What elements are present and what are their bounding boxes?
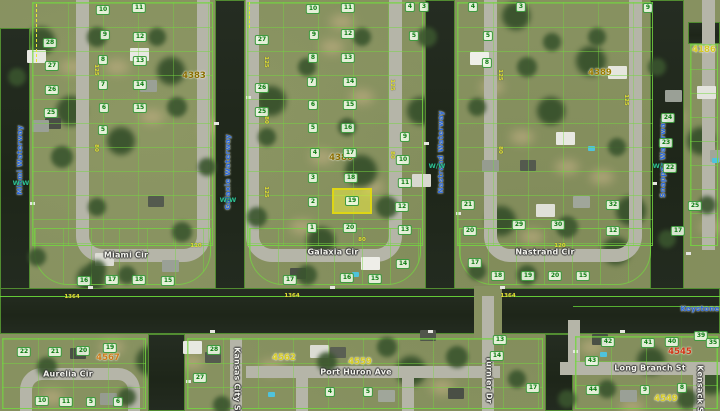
parcel-number-badge: 23: [659, 138, 673, 148]
parcel-number-badge: 1: [307, 223, 317, 233]
parcel-number-badge: 10: [396, 155, 410, 165]
street-label: Turnier Dr: [485, 356, 494, 403]
parcel-number-badge: 21: [461, 200, 475, 210]
parcel-number-badge: 8: [98, 55, 108, 65]
lot-dimension-label: 80: [497, 146, 503, 154]
parcel-number-badge: 11: [59, 397, 73, 407]
lot-dimension-label: 120: [554, 243, 565, 249]
parcel-number-badge: 3: [308, 173, 318, 183]
lot-dimension-label: 125: [389, 79, 395, 90]
parcel-number-badge: 11: [398, 178, 412, 188]
parcel-number-badge: 5: [483, 31, 493, 41]
parcel-number-badge: 4: [468, 2, 478, 12]
address-label: 4389: [588, 68, 612, 78]
parcel-number-badge: 8: [677, 383, 687, 393]
waterway-label: Keystone: [680, 305, 719, 313]
street-label: Galaxia Cir: [308, 248, 359, 257]
parcel-number-badge: 12: [133, 32, 147, 42]
parcel-number-badge: 28: [43, 38, 57, 48]
parcel-number-badge: 20: [463, 226, 477, 236]
parcel-number-badge: 40: [665, 337, 679, 347]
parcel-number-badge: 43: [585, 356, 599, 366]
parcel-number-badge: 14: [490, 351, 504, 361]
parcel-number-badge: 44: [586, 385, 600, 395]
satellite-parcel-map[interactable]: 19 Miami WaterwayGalaxie WaterwayNastran…: [0, 0, 720, 411]
street-label: Long Branch St: [614, 364, 686, 373]
parcel-number-badge: 16: [77, 276, 91, 286]
waterway-label: Nastrand Waterway: [437, 110, 445, 193]
parcel-number-badge: 11: [341, 3, 355, 13]
parcel-number-badge: 17: [671, 226, 685, 236]
lot-dimension-label: 1364: [500, 293, 515, 299]
parcel-number-badge: 10: [306, 4, 320, 14]
lot-dimension-label: 125: [497, 69, 503, 80]
parcel-number-badge: 6: [113, 397, 123, 407]
parcel-number-badge: 21: [48, 347, 62, 357]
street-label: Kensack St: [696, 365, 705, 411]
lot-dimension-label: 80: [93, 144, 99, 152]
parcel-number-badge: 16: [341, 123, 355, 133]
parcel-number-badge: 25: [44, 108, 58, 118]
address-label: 4545: [668, 347, 692, 357]
parcel-number-badge: 12: [395, 202, 409, 212]
parcel-number-badge: 16: [340, 273, 354, 283]
parcel-number-badge: 13: [398, 225, 412, 235]
parcel-number-badge: 22: [17, 347, 31, 357]
street-label: Aurelia Cir: [43, 370, 93, 379]
parcel-number-badge: 26: [45, 85, 59, 95]
waterway-ww-marker: W/W: [13, 179, 30, 187]
parcel-number-badge: 5: [98, 125, 108, 135]
parcel-number-badge: 12: [606, 226, 620, 236]
parcel-number-badge: 13: [133, 56, 147, 66]
address-label: 4562: [272, 353, 296, 363]
map-labels-overlay: Miami WaterwayGalaxie WaterwayNastrand W…: [0, 0, 720, 411]
waterway-ww-marker: W/W: [220, 196, 237, 204]
lot-dimension-label: 80: [358, 237, 366, 243]
parcel-number-badge: 30: [551, 220, 565, 230]
street-label: Port Huron Ave: [320, 368, 392, 377]
parcel-number-badge: 15: [133, 103, 147, 113]
parcel-number-badge: 32: [606, 200, 620, 210]
parcel-number-badge: 17: [468, 258, 482, 268]
parcel-number-badge: 7: [307, 77, 317, 87]
address-label: 4559: [348, 357, 372, 367]
parcel-number-badge: 22: [663, 163, 677, 173]
parcel-number-badge: 8: [482, 58, 492, 68]
parcel-number-badge: 9: [400, 132, 410, 142]
parcel-number-badge: 10: [35, 396, 49, 406]
parcel-number-badge: 10: [96, 5, 110, 15]
parcel-number-badge: 42: [601, 337, 615, 347]
parcel-number-badge: 19: [103, 343, 117, 353]
parcel-number-badge: 18: [344, 173, 358, 183]
parcel-number-badge: 18: [491, 271, 505, 281]
parcel-number-badge: 6: [99, 103, 109, 113]
parcel-number-badge: 5: [86, 397, 96, 407]
parcel-number-badge: 5: [363, 387, 373, 397]
lot-dimension-label: 80: [389, 151, 395, 159]
parcel-number-badge: 15: [343, 100, 357, 110]
parcel-number-badge: 29: [512, 220, 526, 230]
parcel-number-badge: 15: [368, 274, 382, 284]
parcel-number-badge: 3: [419, 2, 429, 12]
parcel-number-badge: 14: [133, 80, 147, 90]
parcel-number-badge: 5: [308, 123, 318, 133]
parcel-number-badge: 20: [548, 271, 562, 281]
parcel-number-badge: 27: [45, 61, 59, 71]
parcel-number-badge: 2: [308, 197, 318, 207]
parcel-number-badge: 20: [343, 223, 357, 233]
parcel-number-badge: 14: [396, 259, 410, 269]
street-label: Miami Cir: [104, 251, 148, 260]
parcel-number-badge: 17: [343, 148, 357, 158]
address-label: 4186: [692, 45, 716, 55]
parcel-number-badge: 5: [409, 31, 419, 41]
parcel-number-badge: 20: [76, 346, 90, 356]
street-label: Kansas City St: [233, 347, 242, 411]
parcel-number-badge: 15: [576, 271, 590, 281]
parcel-number-badge: 17: [283, 275, 297, 285]
lot-dimension-label: 1364: [64, 294, 79, 300]
parcel-number-badge: 41: [641, 338, 655, 348]
parcel-number-badge: 27: [193, 373, 207, 383]
address-label: 4549: [654, 394, 678, 404]
parcel-number-badge: 9: [640, 385, 650, 395]
lot-dimension-label: 125: [623, 94, 629, 105]
waterway-ww-marker: W/W: [429, 162, 446, 170]
lot-dimension-label: 1364: [284, 293, 299, 299]
lot-dimension-label: 125: [263, 186, 269, 197]
parcel-number-badge: 11: [132, 3, 146, 13]
parcel-number-badge: 4: [405, 2, 415, 12]
lot-dimension-label: 125: [93, 64, 99, 75]
parcel-number-badge: 18: [132, 275, 146, 285]
parcel-number-badge: 28: [207, 345, 221, 355]
parcel-number-badge: 27: [255, 35, 269, 45]
parcel-number-badge: 9: [100, 30, 110, 40]
parcel-number-badge: 25: [688, 201, 702, 211]
lot-dimension-label: 110: [190, 243, 201, 249]
parcel-number-badge: 19: [521, 271, 535, 281]
parcel-number-badge: 13: [341, 53, 355, 63]
address-label: 4567: [96, 353, 120, 363]
address-label: 4383: [182, 71, 206, 81]
parcel-number-badge: 8: [308, 53, 318, 63]
parcel-number-badge: 26: [255, 83, 269, 93]
parcel-number-badge: 7: [98, 80, 108, 90]
parcel-number-badge: 13: [493, 335, 507, 345]
parcel-number-badge: 6: [308, 100, 318, 110]
parcel-number-badge: 35: [706, 338, 720, 348]
lot-dimension-label: 125: [263, 56, 269, 67]
parcel-number-badge: 17: [526, 383, 540, 393]
parcel-number-badge: 9: [309, 30, 319, 40]
parcel-number-badge: 17: [105, 275, 119, 285]
parcel-number-badge: 9: [643, 3, 653, 13]
waterway-label: Snapper Waterway: [659, 118, 667, 198]
parcel-number-badge: 4: [310, 148, 320, 158]
parcel-number-badge: 14: [343, 77, 357, 87]
parcel-number-badge: 4: [325, 387, 335, 397]
parcel-number-badge: 15: [161, 276, 175, 286]
parcel-number-badge: 24: [661, 113, 675, 123]
parcel-number-badge: 3: [516, 2, 526, 12]
lot-dimension-label: 80: [263, 116, 269, 124]
parcel-number-badge: 12: [341, 29, 355, 39]
